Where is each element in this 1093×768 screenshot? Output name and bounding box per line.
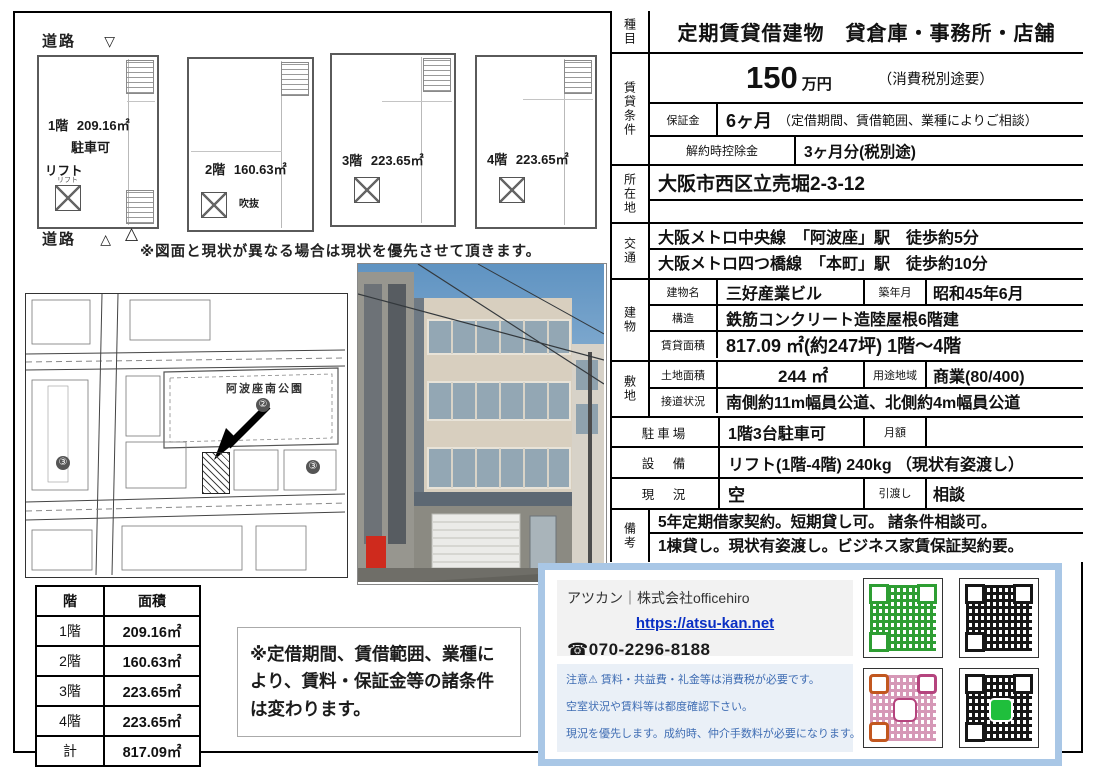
access-row-2: 大阪メトロ四つ橋線 「本町」駅 徒歩約10分 bbox=[650, 250, 1083, 274]
header-area: 面積 bbox=[105, 587, 199, 615]
parking-note: 駐車可 bbox=[71, 137, 110, 156]
qr-finder bbox=[1013, 584, 1033, 604]
spec-group-terms: 賃貸条件 150 万円 （消費税別途要） 保証金 6ヶ月 （定借期間、賃借範囲、… bbox=[612, 54, 1083, 166]
lift-shaft-icon bbox=[55, 185, 81, 211]
land-area-value: 244 ㎡ bbox=[718, 362, 863, 387]
floorplan-2f: 2階 160.63㎡ 吹抜 bbox=[187, 57, 314, 232]
remarks-row-2: 1棟貸し。現状有姿渡し。ビジネス家賃保証契約要。 bbox=[650, 534, 1083, 556]
deposit-value: 6ヶ月 bbox=[718, 107, 772, 133]
parking-label: 駐車場 bbox=[612, 418, 720, 446]
status-row: 空 引渡し 相談 bbox=[720, 479, 1083, 508]
spec-label-access: 交通 bbox=[612, 224, 650, 278]
terms-note-box: ※定借期間、賃借範囲、業種により、賃料・保証金等の諸条件は変わります。 bbox=[237, 627, 521, 737]
remarks-label: 備考 bbox=[612, 510, 650, 562]
qr-finder bbox=[1013, 674, 1033, 694]
equipment-label: 設 備 bbox=[612, 448, 720, 477]
floorplan-3f: 3階 223.65㎡ bbox=[330, 53, 456, 227]
cell-floor: 2階 bbox=[37, 647, 105, 675]
floor-area: 223.65㎡ bbox=[516, 152, 569, 167]
notes-panel: 注意⚠ 賃料・共益費・礼金等は消費税が必要です。 空室状況や賃料等は都度確認下さ… bbox=[557, 664, 853, 752]
handover-value: 相談 bbox=[927, 481, 1083, 505]
lift-shaft-icon bbox=[499, 177, 525, 203]
handover-label: 引渡し bbox=[863, 479, 927, 508]
website-link[interactable]: https://atsu-kan.net bbox=[567, 615, 843, 632]
rent-area-label: 賃貸面積 bbox=[650, 332, 718, 358]
phone-number: 070-2296-8188 bbox=[589, 640, 711, 659]
spec-group-category: 種目 定期賃貸借建物 貸倉庫・事務所・店舗 bbox=[612, 11, 1083, 54]
equipment-row: リフト(1階-4階) 240kg （現状有姿渡し） bbox=[720, 448, 1083, 477]
cell-area: 817.09㎡ bbox=[105, 737, 199, 765]
entrance-triangle-icon: △ bbox=[125, 224, 140, 244]
remarks-row-1: 5年定期借家契約。短期貸し可。 諸条件相談可。 bbox=[650, 510, 1083, 534]
plan-wall bbox=[127, 101, 155, 102]
void-label: 吹抜 bbox=[239, 195, 259, 210]
table-row: 1階 209.16㎡ bbox=[37, 617, 199, 647]
map-marker-3a: ③ bbox=[56, 456, 70, 470]
rent-value: 150 bbox=[746, 60, 798, 96]
floor-area-table: 階 面積 1階 209.16㎡ 2階 160.63㎡ 3階 223.65㎡ 4階… bbox=[35, 585, 201, 767]
parking-value: 1階3台駐車可 bbox=[720, 420, 863, 444]
status-value: 空 bbox=[720, 481, 863, 506]
table-row-total: 計 817.09㎡ bbox=[37, 737, 199, 765]
rent-area-value: 817.09 ㎡(約247坪) 1階〜4階 bbox=[718, 332, 961, 358]
map-marker-3b: ③ bbox=[306, 460, 320, 474]
road-label-bottom-text: 道路 bbox=[42, 231, 76, 248]
cell-floor: 4階 bbox=[37, 707, 105, 735]
built-label: 築年月 bbox=[863, 280, 927, 304]
land-area-row: 土地面積 244 ㎡ 用途地域 商業(80/400) bbox=[650, 362, 1083, 389]
spec-table: 種目 定期賃貸借建物 貸倉庫・事務所・店舗 賃貸条件 150 万円 （消費税別途… bbox=[610, 11, 1083, 562]
spec-group-access: 交通 大阪メトロ中央線 「阿波座」駅 徒歩約5分 大阪メトロ四つ橋線 「本町」駅… bbox=[612, 224, 1083, 280]
map-marker-2: ② bbox=[256, 398, 270, 412]
contact-note-3: 現況を優先します。成約時、仲介手数料が必要になります。 bbox=[566, 725, 844, 741]
qr-finder bbox=[965, 584, 985, 604]
monthly-label: 月額 bbox=[863, 418, 927, 446]
qr-finder bbox=[869, 722, 889, 742]
road-access-row: 接道状況 南側約11m幅員公道、北側約4m幅員公道 bbox=[650, 389, 1083, 413]
floor-number: 1階 bbox=[48, 118, 68, 133]
phone-icon: ☎ bbox=[567, 640, 589, 659]
stairs-icon bbox=[126, 190, 154, 224]
structure-row: 構造 鉄筋コンクリート造陸屋根6階建 bbox=[650, 306, 1083, 332]
floorplan-2f-label: 2階 160.63㎡ bbox=[205, 159, 287, 178]
spec-group-building: 建物 建物名 三好産業ビル 築年月 昭和45年6月 構造 鉄筋コンクリート造陸屋… bbox=[612, 280, 1083, 362]
address-row-empty bbox=[650, 201, 1083, 222]
qr-finder bbox=[869, 584, 889, 604]
floor-number: 3階 bbox=[342, 153, 362, 168]
cell-area: 160.63㎡ bbox=[105, 647, 199, 675]
qr-finder bbox=[917, 674, 937, 694]
qr-finder bbox=[869, 632, 889, 652]
listing-title: 定期賃貸借建物 貸倉庫・事務所・店舗 bbox=[650, 17, 1083, 46]
rent-row: 150 万円 （消費税別途要） bbox=[650, 54, 1083, 104]
access-line-1: 大阪メトロ中央線 「阿波座」駅 徒歩約5分 bbox=[650, 224, 979, 248]
line-icon bbox=[989, 698, 1013, 722]
equipment-value: リフト(1階-4階) 240kg （現状有姿渡し） bbox=[720, 451, 1024, 475]
spec-group-site: 敷地 土地面積 244 ㎡ 用途地域 商業(80/400) 接道状況 南側約11… bbox=[612, 362, 1083, 418]
map-site-hatch bbox=[202, 452, 230, 494]
remarks-line-1: 5年定期借家契約。短期貸し可。 諸条件相談可。 bbox=[650, 510, 996, 532]
spec-label-terms: 賃貸条件 bbox=[612, 54, 650, 164]
map-park-label: 阿波座南公園 bbox=[226, 380, 304, 396]
status-label: 現 況 bbox=[612, 479, 720, 508]
contact-card: アツカン｜株式会社officehiro https://atsu-kan.net… bbox=[538, 563, 1062, 766]
qr-code-line bbox=[959, 668, 1039, 748]
map-drawing bbox=[26, 294, 345, 575]
spec-label-address: 所在地 bbox=[612, 166, 650, 222]
remarks-line-2: 1棟貸し。現状有姿渡し。ビジネス家賃保証契約要。 bbox=[650, 534, 1023, 556]
plan-wall bbox=[382, 101, 452, 102]
floor-area: 209.16㎡ bbox=[77, 118, 130, 133]
spec-label-building: 建物 bbox=[612, 280, 650, 360]
access-row-1: 大阪メトロ中央線 「阿波座」駅 徒歩約5分 bbox=[650, 224, 1083, 250]
contact-note-1: 注意⚠ 賃料・共益費・礼金等は消費税が必要です。 bbox=[566, 671, 844, 687]
stairs-icon bbox=[126, 60, 154, 94]
company-panel: アツカン｜株式会社officehiro https://atsu-kan.net… bbox=[557, 580, 853, 656]
road-triangle-up-icon: △ bbox=[100, 231, 111, 247]
rent-tax-note: （消費税別途要） bbox=[878, 68, 994, 89]
road-triangle-down-icon: ▽ bbox=[104, 33, 115, 49]
cell-floor: 1階 bbox=[37, 617, 105, 645]
plan-wall bbox=[191, 151, 282, 152]
plan-wall bbox=[421, 57, 422, 223]
road-label-top-text: 道路 bbox=[42, 33, 76, 50]
terms-note-text: ※定借期間、賃借範囲、業種により、賃料・保証金等の諸条件は変わります。 bbox=[250, 641, 508, 722]
building-photo bbox=[357, 263, 607, 585]
floorplan-4f-label: 4階 223.65㎡ bbox=[487, 149, 569, 168]
spec-group-remarks: 備考 5年定期借家契約。短期貸し可。 諸条件相談可。 1棟貸し。現状有姿渡し。ビ… bbox=[612, 510, 1083, 562]
plans-disclaimer: ※図面と現状が異なる場合は現状を優先させて頂きます。 bbox=[140, 240, 541, 261]
table-header-row: 階 面積 bbox=[37, 587, 199, 617]
lift-shaft-icon bbox=[354, 177, 380, 203]
spec-label-category: 種目 bbox=[612, 11, 650, 52]
lift-small-label: リフト bbox=[57, 175, 78, 185]
structure-label: 構造 bbox=[650, 306, 718, 330]
qr-finder bbox=[965, 674, 985, 694]
floorplan-4f: 4階 223.65㎡ bbox=[475, 55, 597, 229]
cancellation-label: 解約時控除金 bbox=[650, 137, 796, 164]
qr-finder bbox=[965, 722, 985, 742]
address-value: 大阪市西区立売堀2-3-12 bbox=[650, 169, 865, 196]
spec-label-site: 敷地 bbox=[612, 362, 650, 416]
qr-finder bbox=[917, 584, 937, 604]
rent-area-row: 賃貸面積 817.09 ㎡(約247坪) 1階〜4階 bbox=[650, 332, 1083, 358]
access-line-2: 大阪メトロ四つ橋線 「本町」駅 徒歩約10分 bbox=[650, 250, 988, 274]
cell-area: 209.16㎡ bbox=[105, 617, 199, 645]
floorplan-1f: 1階 209.16㎡ 駐車可 リフト リフト bbox=[37, 55, 159, 229]
area-map: 阿波座南公園 ② ③ ③ bbox=[25, 293, 348, 578]
road-access-value: 南側約11m幅員公道、北側約4m幅員公道 bbox=[718, 389, 1020, 413]
cancellation-row: 解約時控除金 3ヶ月分(税別途) bbox=[650, 137, 1083, 164]
road-label-top: 道路 ▽ bbox=[42, 30, 115, 51]
built-value: 昭和45年6月 bbox=[927, 280, 1083, 304]
zoning-label: 用途地域 bbox=[863, 362, 927, 387]
deposit-note: （定借期間、賃借範囲、業種によりご相談） bbox=[778, 110, 1038, 129]
cell-area: 223.65㎡ bbox=[105, 707, 199, 735]
road-label-bottom: 道路 △ bbox=[42, 228, 111, 249]
cell-floor: 計 bbox=[37, 737, 105, 765]
cell-area: 223.65㎡ bbox=[105, 677, 199, 705]
parking-row: 1階3台駐車可 月額 bbox=[720, 418, 1083, 446]
stairs-icon bbox=[423, 58, 451, 92]
spec-group-equipment: 設 備 リフト(1階-4階) 240kg （現状有姿渡し） bbox=[612, 448, 1083, 479]
qr-finder bbox=[965, 632, 985, 652]
header-floor: 階 bbox=[37, 587, 105, 615]
plan-wall bbox=[523, 99, 593, 100]
contact-note-2: 空室状況や賃料等は都度確認下さい。 bbox=[566, 698, 844, 714]
floor-area: 160.63㎡ bbox=[234, 162, 287, 177]
floor-area: 223.65㎡ bbox=[371, 153, 424, 168]
building-name-value: 三好産業ビル bbox=[718, 280, 863, 304]
table-row: 3階 223.65㎡ bbox=[37, 677, 199, 707]
cancellation-value: 3ヶ月分(税別途) bbox=[796, 140, 916, 162]
building-name-label: 建物名 bbox=[650, 280, 718, 304]
spec-group-parking: 駐車場 1階3台駐車可 月額 bbox=[612, 418, 1083, 448]
land-area-label: 土地面積 bbox=[650, 362, 718, 387]
address-row: 大阪市西区立売堀2-3-12 bbox=[650, 166, 1083, 201]
lift-shaft-icon bbox=[201, 192, 227, 218]
spec-group-status: 現 況 空 引渡し 相談 bbox=[612, 479, 1083, 510]
spec-group-address: 所在地 大阪市西区立売堀2-3-12 bbox=[612, 166, 1083, 224]
floor-number: 2階 bbox=[205, 162, 225, 177]
table-row: 2階 160.63㎡ bbox=[37, 647, 199, 677]
qr-code-website-green bbox=[863, 578, 943, 658]
qr-code-black bbox=[959, 578, 1039, 658]
rent-unit: 万円 bbox=[802, 73, 832, 94]
floor-number: 4階 bbox=[487, 152, 507, 167]
qr-code-instagram bbox=[863, 668, 943, 748]
building-name-row: 建物名 三好産業ビル 築年月 昭和45年6月 bbox=[650, 280, 1083, 306]
property-flyer-page: 道路 ▽ 1階 209.16㎡ 駐車可 リフト リフト 道路 △ △ 2階 16… bbox=[0, 0, 1093, 768]
stairs-icon bbox=[564, 60, 592, 94]
company-name: アツカン｜株式会社officehiro bbox=[567, 588, 843, 608]
cell-floor: 3階 bbox=[37, 677, 105, 705]
zoning-value: 商業(80/400) bbox=[927, 363, 1083, 387]
table-row: 4階 223.65㎡ bbox=[37, 707, 199, 737]
building-photo-drawing bbox=[358, 264, 604, 582]
floorplan-1f-label: 1階 209.16㎡ bbox=[48, 115, 130, 134]
phone-line[interactable]: ☎070-2296-8188 bbox=[567, 640, 843, 660]
instagram-icon bbox=[893, 698, 917, 722]
floorplan-3f-label: 3階 223.65㎡ bbox=[342, 150, 424, 169]
stairs-icon bbox=[281, 62, 309, 96]
qr-finder bbox=[869, 674, 889, 694]
structure-value: 鉄筋コンクリート造陸屋根6階建 bbox=[718, 306, 959, 330]
deposit-row: 保証金 6ヶ月 （定借期間、賃借範囲、業種によりご相談） bbox=[650, 104, 1083, 137]
deposit-label: 保証金 bbox=[650, 104, 718, 135]
road-access-label: 接道状況 bbox=[650, 389, 718, 413]
